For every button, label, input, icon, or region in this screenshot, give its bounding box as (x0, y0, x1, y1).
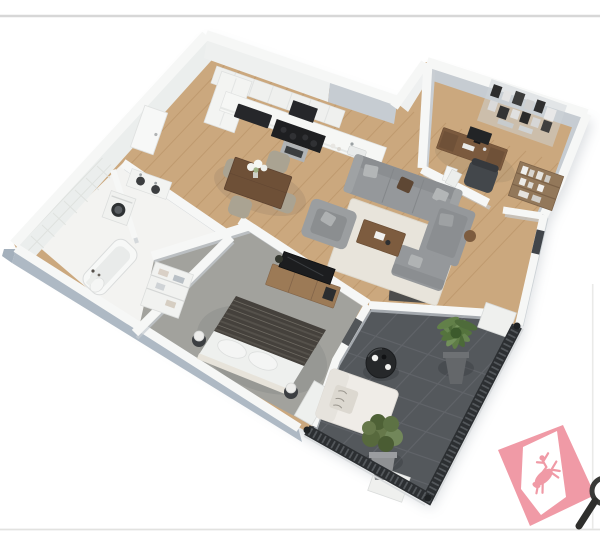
candle (98, 274, 101, 277)
railing-post (514, 323, 521, 330)
bistro-table (366, 348, 396, 378)
floor-plan-svg (0, 0, 600, 541)
candle (91, 269, 94, 272)
plant-center (451, 328, 462, 339)
vase (253, 172, 258, 178)
watermark-logo (498, 425, 595, 526)
floor-plan-image (0, 0, 600, 541)
leaf-cluster (383, 416, 399, 432)
decor-plant (275, 255, 283, 263)
lamp-shade (286, 383, 296, 393)
carafe (382, 355, 387, 360)
railing-post (425, 495, 432, 502)
bottle (331, 144, 336, 149)
bottle (337, 147, 341, 151)
leaf-cluster (378, 436, 394, 452)
flower (261, 165, 268, 172)
lamp-shade (194, 331, 204, 341)
pot-rim (369, 452, 397, 458)
office-left-wall-band (422, 63, 428, 168)
greenery (253, 167, 258, 172)
cup (385, 364, 391, 370)
railing-post (304, 427, 311, 434)
leaf-cluster (362, 421, 376, 435)
cup (372, 355, 378, 361)
pillow (438, 213, 454, 227)
pot-rim (443, 352, 469, 358)
side-table (464, 230, 476, 242)
faucet (350, 142, 353, 145)
